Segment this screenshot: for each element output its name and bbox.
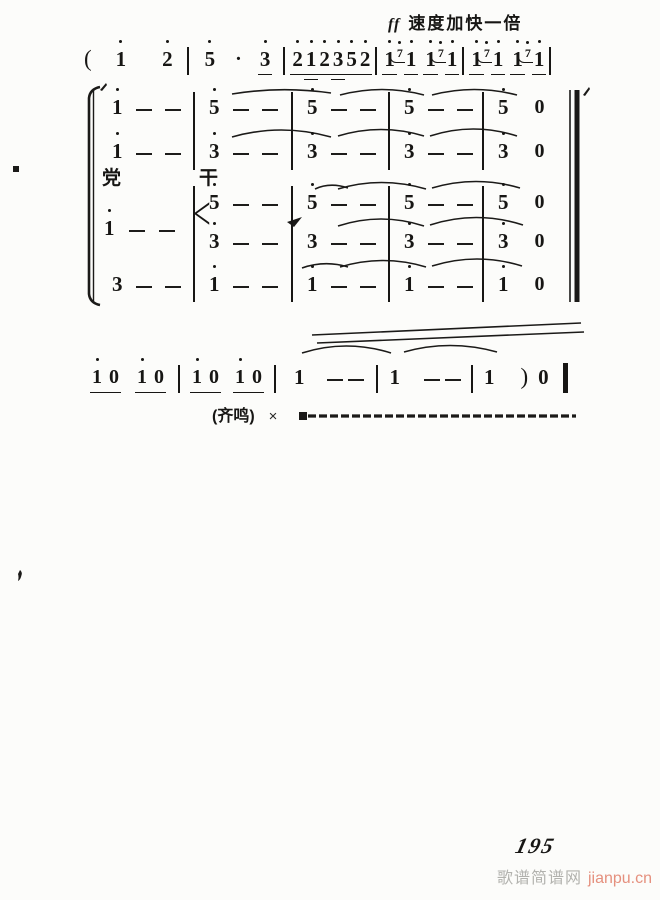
octave-dot [408, 183, 411, 186]
grace-note: 7 [397, 47, 403, 59]
octave-dot [502, 265, 505, 268]
note: 1 [137, 364, 147, 390]
octave-dot [364, 40, 367, 43]
duration-dash [360, 109, 376, 111]
sheet-music-page: ff速度加快一倍 (125·3212352171171171171 155550… [0, 0, 660, 900]
note-pair: 10 [92, 364, 119, 390]
duration-dash [428, 243, 444, 245]
barline [549, 47, 551, 75]
duration-dash [428, 286, 444, 288]
duration-dash [457, 243, 473, 245]
note: 0 [538, 364, 549, 390]
note: 5 [404, 94, 415, 120]
note: 3 [333, 46, 344, 72]
octave-dot [310, 40, 313, 43]
measure: 1 [388, 269, 485, 297]
note: 0 [252, 364, 262, 390]
tempo-marking: ff速度加快一倍 [388, 9, 522, 34]
note: 1 [112, 94, 123, 120]
duration-dash [428, 109, 444, 111]
measure: 3 [388, 136, 485, 164]
measure: 5 [193, 92, 290, 120]
note: 3 [112, 271, 123, 297]
measure: 30 [482, 136, 574, 164]
duration-dash [360, 204, 376, 206]
note: 5 [346, 46, 357, 72]
coda-line: 10101010111)0 [92, 356, 568, 390]
duration-dash [457, 109, 473, 111]
octave-dot [497, 40, 500, 43]
note: 1 [404, 271, 415, 297]
note: 1 [534, 46, 545, 72]
note: 5 [498, 189, 509, 215]
chord-bracket: < [193, 192, 211, 239]
octave-dot [408, 88, 411, 91]
duration-dash [360, 286, 376, 288]
duration-dash [136, 153, 152, 155]
measure: 50 [482, 92, 574, 120]
barline [462, 47, 464, 75]
rest: 0 [535, 189, 545, 215]
octave-dot [166, 40, 169, 43]
crescendo-line [317, 332, 584, 343]
measure: 3 [193, 136, 290, 164]
note: 2 [162, 46, 173, 72]
duration-dash [331, 286, 347, 288]
octave-dot [429, 40, 432, 43]
duration-dash [233, 204, 249, 206]
octave-dot [213, 88, 216, 91]
system-row-voice-3-upper: 55550 [0, 187, 660, 215]
octave-dot [108, 209, 111, 212]
melody-line: (125·3212352171171171171 [84, 38, 551, 72]
octave-dot [350, 40, 353, 43]
duration-dash [457, 204, 473, 206]
augmentation-dot: · [235, 46, 242, 72]
tutti-square-mark [299, 412, 307, 420]
octave-dot [311, 132, 314, 135]
barline [291, 186, 293, 302]
octave-dot [119, 40, 122, 43]
duration-dash [331, 204, 347, 206]
note: 5 [307, 94, 318, 120]
measure: 5 [388, 92, 485, 120]
note: 1 [484, 364, 495, 390]
octave-dot [516, 40, 519, 43]
octave-dot [296, 40, 299, 43]
octave-dot [337, 40, 340, 43]
note: 3 [404, 138, 415, 164]
note: 0 [209, 364, 219, 390]
duration-dash [136, 109, 152, 111]
barline [482, 92, 484, 170]
note: 1 [390, 364, 401, 390]
parenthesis: ( [84, 46, 92, 72]
note: 2 [319, 46, 330, 72]
barline [187, 47, 189, 75]
grace-note: 7 [484, 47, 490, 59]
note: 3 [209, 138, 220, 164]
note: 1 [294, 364, 305, 390]
rest: 0 [535, 228, 545, 254]
octave-dot [311, 88, 314, 91]
octave-dot [213, 132, 216, 135]
measure: 1 [193, 269, 290, 297]
duration-dash [233, 243, 249, 245]
barline [178, 365, 180, 393]
note: 1 [112, 138, 123, 164]
note: 5 [209, 94, 220, 120]
note-pair: 10 [137, 364, 164, 390]
octave-dot [502, 88, 505, 91]
note: 3 [498, 228, 509, 254]
note: 1 [493, 46, 504, 72]
note: 5 [205, 46, 216, 72]
scan-speck [18, 570, 22, 581]
duration-dash [129, 230, 145, 232]
note: 1 [406, 46, 417, 72]
duration-dash [360, 243, 376, 245]
measure: 1 [291, 269, 388, 297]
octave-dot [311, 183, 314, 186]
tutti-annotation: (齐鸣)× [212, 402, 277, 426]
note-pair: 10 [235, 364, 262, 390]
measure: 50 [482, 187, 574, 215]
duration-dash [165, 286, 181, 288]
measure: 5 [291, 92, 388, 120]
note: 3 [498, 138, 509, 164]
tutti-label: (齐鸣) [212, 408, 255, 425]
octave-dot [96, 358, 99, 361]
note: 1 [104, 215, 115, 241]
notation-graphics [0, 0, 660, 900]
note: 1 [116, 46, 127, 72]
duration-dash [428, 204, 444, 206]
tempo-text: 速度加快一倍 [408, 14, 522, 33]
octave-dot [538, 40, 541, 43]
duration-dash [445, 379, 461, 381]
measure: 5 [291, 187, 388, 215]
rest: 0 [535, 138, 545, 164]
barline [471, 365, 473, 393]
duration-dash [348, 379, 364, 381]
barline [482, 186, 484, 302]
note: 1 [306, 46, 317, 72]
watermark: 歌谱简谱网jianpu.cn [497, 864, 652, 888]
octave-dot [475, 40, 478, 43]
duration-dash [457, 153, 473, 155]
octave-dot [408, 222, 411, 225]
voice3-first-bar: 1 [104, 213, 175, 241]
octave-dot [451, 40, 454, 43]
octave-dot [526, 41, 529, 44]
duration-dash [262, 204, 278, 206]
barline [193, 92, 195, 170]
note: 0 [109, 364, 119, 390]
duration-dash [233, 109, 249, 111]
barline [274, 365, 276, 393]
parenthesis: ) [521, 364, 529, 390]
note: 1 [209, 271, 220, 297]
duration-dash [331, 109, 347, 111]
measure: 30 [482, 226, 574, 254]
measure: 3 [291, 226, 388, 254]
duration-dash [428, 153, 444, 155]
barline [291, 92, 293, 170]
duration-dash [159, 230, 175, 232]
octave-dot [208, 40, 211, 43]
grace-note: 7 [438, 47, 444, 59]
duration-dash [360, 153, 376, 155]
duration-dash [165, 153, 181, 155]
note: 0 [154, 364, 164, 390]
measure: 1 [96, 92, 193, 120]
note: 5 [498, 94, 509, 120]
note: 1 [307, 271, 318, 297]
times-mark: × [269, 408, 278, 425]
octave-dot [388, 40, 391, 43]
duration-dash [262, 243, 278, 245]
measure: 1 [96, 136, 193, 164]
octave-dot [408, 132, 411, 135]
octave-dot [502, 183, 505, 186]
duration-dash [136, 286, 152, 288]
system-row-voice-3-lower: 33330 [0, 226, 660, 254]
system-row-voice-1: 155550 [0, 92, 660, 120]
watermark-site-name: 歌谱简谱网 [497, 870, 582, 887]
octave-dot [116, 132, 119, 135]
octave-dot [141, 358, 144, 361]
rest: 0 [535, 271, 545, 297]
barline [376, 365, 378, 393]
measure: 3 [388, 226, 485, 254]
octave-dot [116, 88, 119, 91]
duration-dash [233, 286, 249, 288]
octave-dot [439, 41, 442, 44]
lyric-syllable: 党 [102, 163, 121, 190]
octave-dot [398, 41, 401, 44]
measure: 3 [96, 269, 193, 297]
measure: 10 [482, 269, 574, 297]
crescendo-line [312, 323, 581, 335]
lyric-syllable: 干 [199, 163, 218, 190]
duration-dash [424, 379, 440, 381]
note: 2 [292, 46, 303, 72]
octave-dot [323, 40, 326, 43]
scan-speck [100, 83, 107, 91]
duration-dash [262, 153, 278, 155]
barline [375, 47, 377, 75]
octave-dot [213, 265, 216, 268]
duration-dash [233, 153, 249, 155]
duration-dash [331, 153, 347, 155]
measure: 5 [388, 187, 485, 215]
scan-speck [13, 166, 19, 172]
note: 3 [307, 138, 318, 164]
octave-dot [239, 358, 242, 361]
system-row-voice-4: 311110 [0, 269, 660, 297]
note: 1 [192, 364, 202, 390]
duration-dash [331, 243, 347, 245]
octave-dot [485, 41, 488, 44]
duration-dash [327, 379, 343, 381]
barline [388, 186, 390, 302]
octave-dot [410, 40, 413, 43]
octave-dot [264, 40, 267, 43]
system-row-voice-2: 133330 [0, 136, 660, 164]
octave-dot [311, 265, 314, 268]
note: 1 [498, 271, 509, 297]
barline [388, 92, 390, 170]
octave-dot [213, 222, 216, 225]
note: 1 [235, 364, 245, 390]
note: 3 [260, 46, 271, 72]
duration-dash [457, 286, 473, 288]
barline [283, 47, 285, 75]
octave-dot [502, 132, 505, 135]
duration-dash [262, 109, 278, 111]
note-pair: 10 [192, 364, 219, 390]
page-number: 195 [513, 833, 558, 859]
note: 1 [447, 46, 458, 72]
octave-dot [502, 222, 505, 225]
watermark-domain: jianpu.cn [588, 870, 652, 887]
rest: 0 [535, 94, 545, 120]
measure: 3 [291, 136, 388, 164]
note: 1 [92, 364, 102, 390]
duration-dash [262, 286, 278, 288]
note: 3 [404, 228, 415, 254]
note: 5 [307, 189, 318, 215]
final-barline [563, 363, 568, 393]
octave-dot [408, 265, 411, 268]
grace-note: 7 [525, 47, 531, 59]
duration-dash [165, 109, 181, 111]
octave-dot [196, 358, 199, 361]
dynamic-mark: ff [388, 16, 400, 33]
note: 2 [360, 46, 371, 72]
note: 3 [307, 228, 318, 254]
note: 5 [404, 189, 415, 215]
